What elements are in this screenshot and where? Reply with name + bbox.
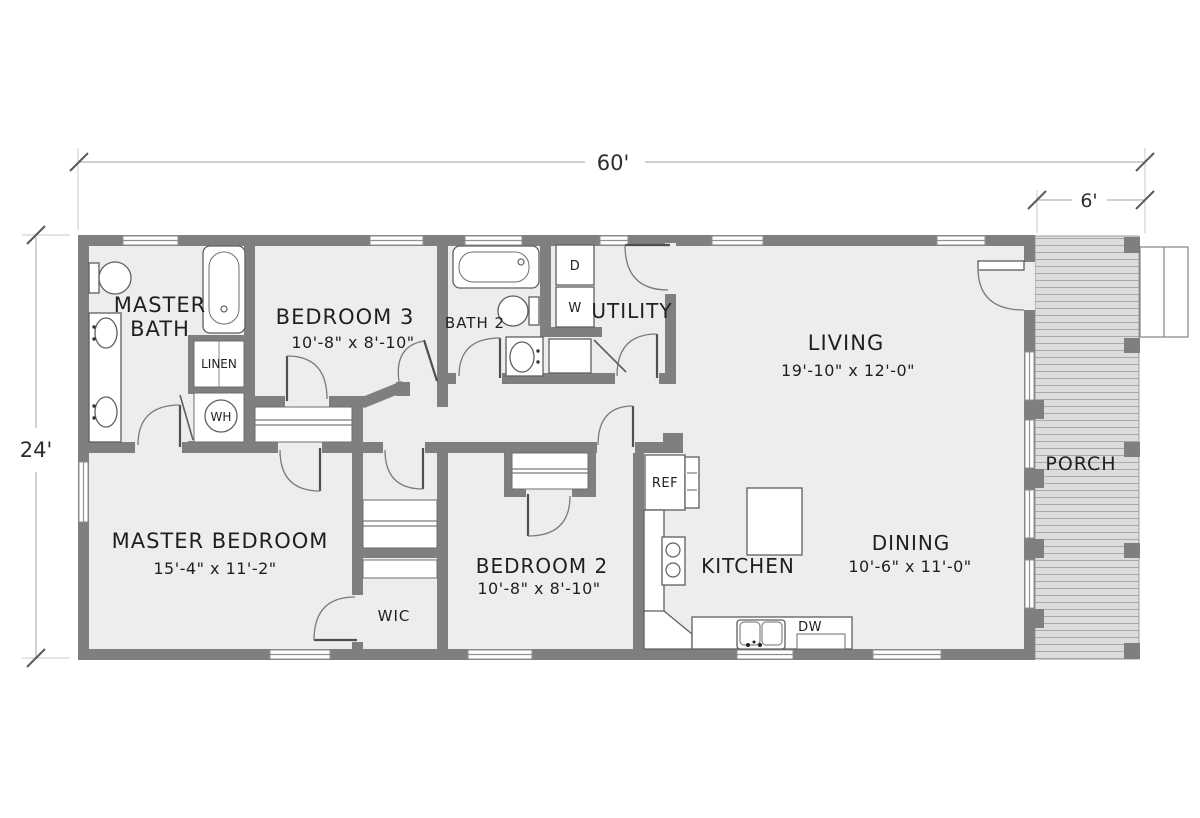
porch-post (1124, 338, 1140, 353)
floor-plan-page: 60' 6' 24' (0, 0, 1200, 818)
floor-plan-drawing: 60' 6' 24' (0, 0, 1200, 818)
porch-wall-post (1035, 609, 1044, 628)
bedroom3-size: 10'-8" x 8'-10" (291, 333, 414, 352)
dimension-overall-depth: 24' (20, 226, 70, 667)
wall-post (396, 382, 410, 396)
water-heater-label: WH (211, 410, 232, 424)
dining-size: 10'-6" x 11'-0" (848, 557, 971, 576)
overall-width-label: 60' (597, 151, 630, 175)
master-bath-label-2: BATH (130, 317, 190, 341)
master-bedroom-size: 15'-4" x 11'-2" (153, 559, 276, 578)
wall-wic-north (352, 548, 448, 558)
wall-bath2-utility (540, 235, 551, 335)
porch-wall-post (1035, 539, 1044, 558)
porch-wall-post (1035, 469, 1044, 488)
dishwasher-box (797, 634, 845, 649)
wic-label: WIC (378, 607, 411, 625)
porch-post (1124, 237, 1140, 253)
dishwasher-label: DW (798, 620, 822, 635)
master-bath-label-1: MASTER (114, 293, 207, 317)
kitchen-counter-west (644, 510, 664, 613)
living-label: LIVING (808, 331, 884, 355)
porch-post (1124, 543, 1140, 558)
dimension-porch-width: 6' (1028, 190, 1154, 233)
living-size: 19'-10" x 12'-0" (781, 361, 915, 380)
porch-deck (1035, 236, 1188, 659)
kitchen-label: KITCHEN (701, 554, 795, 578)
linen-label: LINEN (201, 357, 237, 371)
kitchen-tall-cabinet (685, 457, 699, 508)
bedroom2-closet (512, 453, 588, 489)
wall-linen-bottom (188, 387, 244, 393)
washer-label: W (568, 301, 581, 316)
wall-hall-south-right (448, 442, 683, 453)
wall-kitchen-corner-post (663, 433, 683, 453)
wic-shelf (363, 560, 437, 578)
kitchen-sink (737, 620, 785, 649)
dryer-label: D (570, 259, 581, 274)
kitchen-range (662, 537, 685, 585)
bath2-vanity (506, 337, 543, 376)
overall-depth-label: 24' (20, 438, 53, 462)
bedroom2-size: 10'-8" x 8'-10" (477, 579, 600, 598)
bedroom2-label: BEDROOM 2 (476, 554, 608, 578)
dimension-overall-width: 60' (70, 148, 1154, 233)
bedroom3-label: BEDROOM 3 (276, 305, 415, 329)
porch-post (1124, 442, 1140, 457)
master-bath-toilet (89, 262, 131, 294)
utility-label: UTILITY (591, 299, 672, 323)
wall-linen-top (188, 335, 244, 341)
porch-width-label: 6' (1080, 190, 1097, 212)
kitchen-island (747, 488, 802, 555)
wall-utility-closet-top (540, 327, 602, 337)
porch-label: PORCH (1045, 453, 1116, 475)
master-bedroom-label: MASTER BEDROOM (112, 529, 329, 553)
bath2-label: BATH 2 (445, 314, 505, 332)
wall-bedroom2-east (633, 442, 644, 660)
porch-post (1124, 643, 1140, 659)
master-closet-b (363, 500, 437, 548)
porch-boards (1035, 236, 1139, 659)
utility-appliance (549, 339, 591, 373)
master-bath-tub (203, 246, 245, 333)
bath2-tub (453, 246, 539, 288)
master-bath-vanity (89, 313, 121, 442)
porch-wall-post (1035, 400, 1044, 419)
refrigerator-label: REF (652, 476, 678, 491)
dining-label: DINING (872, 531, 951, 555)
